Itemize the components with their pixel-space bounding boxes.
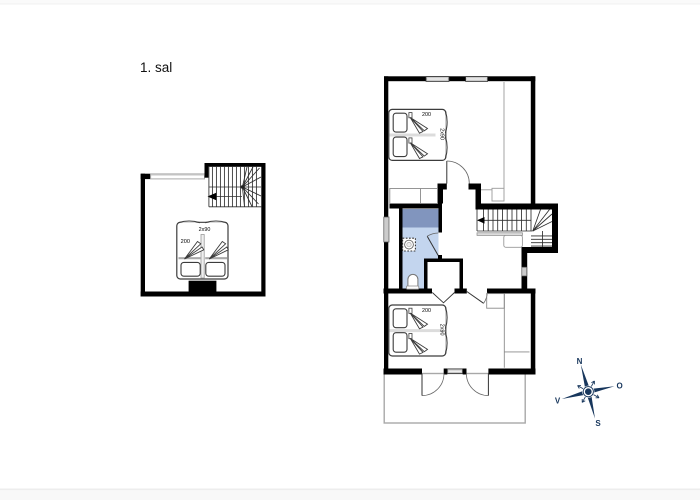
- svg-text:1. sal: 1. sal: [140, 60, 172, 75]
- svg-text:200: 200: [422, 308, 431, 314]
- svg-text:200: 200: [422, 112, 431, 118]
- svg-text:V: V: [555, 397, 561, 406]
- svg-text:S: S: [595, 419, 601, 428]
- svg-text:2x90: 2x90: [439, 324, 445, 336]
- svg-text:200: 200: [181, 239, 190, 245]
- svg-text:O: O: [616, 381, 622, 390]
- svg-text:2x90: 2x90: [439, 128, 445, 140]
- svg-text:N: N: [577, 357, 583, 366]
- svg-text:2x90: 2x90: [199, 227, 211, 233]
